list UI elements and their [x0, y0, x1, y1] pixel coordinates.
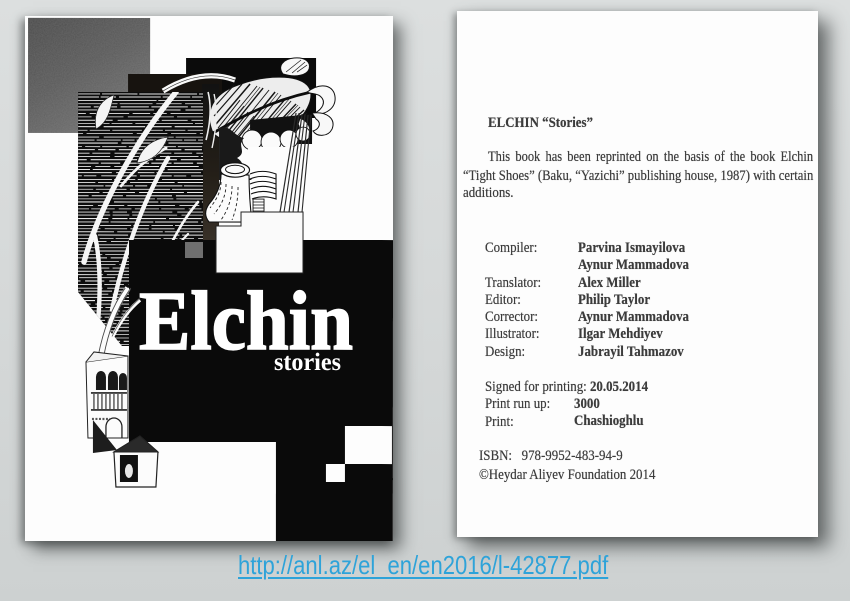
svg-text:stories: stories [274, 349, 341, 376]
